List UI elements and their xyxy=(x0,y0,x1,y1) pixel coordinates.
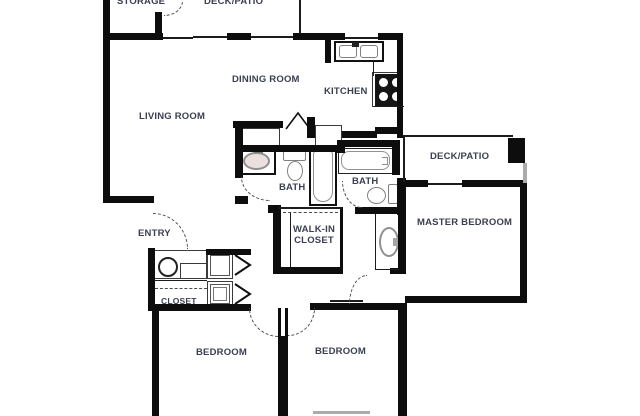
floor-plan-image: STORAGE DECK/PATIO DINING ROOM KITCHEN L… xyxy=(0,0,640,416)
wall-line xyxy=(375,214,376,270)
wall xyxy=(152,308,159,416)
walk-in-closet-line1: WALK-IN xyxy=(290,224,338,235)
wall-line xyxy=(155,280,207,281)
wall xyxy=(405,296,527,303)
wall xyxy=(520,182,527,303)
wall-line xyxy=(403,135,405,182)
kitchen-sink-bowl-right xyxy=(360,45,378,58)
walk-in-closet-line2: CLOSET xyxy=(290,235,338,246)
wall xyxy=(206,249,251,255)
wall-line xyxy=(373,60,374,76)
window-sill-line xyxy=(523,163,527,183)
closet-rod-dashed-line xyxy=(155,288,207,289)
wall xyxy=(380,303,407,310)
washer-dryer-arrows-icon xyxy=(233,253,253,307)
wall xyxy=(103,33,163,40)
wall xyxy=(273,205,281,274)
wall xyxy=(375,127,399,134)
wall xyxy=(148,304,251,311)
wall-line xyxy=(375,269,399,270)
wall-line xyxy=(290,213,291,267)
wall-line xyxy=(193,36,227,38)
stove-burner xyxy=(379,78,388,87)
wall xyxy=(155,12,162,35)
wall xyxy=(340,207,343,269)
wall xyxy=(110,196,154,203)
room-label-bath-left: BATH xyxy=(279,182,305,193)
wall-line xyxy=(403,135,513,137)
wall xyxy=(397,40,403,138)
door-swing-arc xyxy=(342,181,362,208)
wall xyxy=(235,145,337,152)
bath-left-sink-icon xyxy=(243,152,270,170)
wall xyxy=(148,248,155,308)
door-swing-arc xyxy=(349,275,367,304)
room-label-bedroom-right: BEDROOM xyxy=(315,346,366,357)
room-label-walk-in-closet: WALK-IN CLOSET xyxy=(290,224,338,246)
laundry-tub-icon xyxy=(158,257,178,277)
stove-burner xyxy=(379,92,388,101)
wall xyxy=(273,267,343,274)
closet-rod-dashed-line xyxy=(283,212,338,213)
wall xyxy=(325,40,331,63)
wall xyxy=(355,207,400,214)
wall-line xyxy=(299,0,301,34)
wall xyxy=(398,310,407,416)
wall-line xyxy=(278,207,342,209)
wall xyxy=(337,140,345,153)
wall xyxy=(235,196,248,204)
bathtub-faucet-right xyxy=(382,157,388,165)
wall xyxy=(398,213,406,274)
room-label-storage: STORAGE xyxy=(117,0,165,7)
wall-line xyxy=(251,36,293,38)
window-sill-line xyxy=(313,411,370,414)
wall xyxy=(403,180,428,187)
wall xyxy=(378,33,403,40)
wall xyxy=(293,33,345,40)
wall xyxy=(462,180,527,187)
door-swing-arc xyxy=(249,308,279,337)
washer-drum xyxy=(213,287,227,301)
door-swing-arc xyxy=(153,213,188,249)
bathtub-basin-left xyxy=(313,151,333,202)
wall-line xyxy=(428,183,462,185)
wall xyxy=(227,33,251,40)
toilet-icon-right xyxy=(367,187,386,204)
entry-counter-inner xyxy=(180,263,207,279)
room-label-dining-room: DINING ROOM xyxy=(232,74,300,85)
wall xyxy=(508,138,525,163)
wall xyxy=(337,140,397,147)
wall xyxy=(392,140,400,175)
wall-line xyxy=(345,37,378,39)
room-label-kitchen: KITCHEN xyxy=(324,86,368,97)
wall-line xyxy=(373,106,404,107)
room-label-master-bedroom: MASTER BEDROOM xyxy=(417,217,512,228)
toilet-icon-left xyxy=(287,161,303,181)
dryer-door xyxy=(210,255,230,276)
door-swing-arc xyxy=(164,1,183,16)
room-label-bedroom-left: BEDROOM xyxy=(196,347,247,358)
wall-line xyxy=(163,37,193,39)
wall xyxy=(307,117,315,138)
wall xyxy=(103,0,110,203)
room-label-living-room: LIVING ROOM xyxy=(139,111,205,122)
room-label-deck-patio-right: DECK/PATIO xyxy=(430,151,489,162)
wall xyxy=(278,336,288,416)
wall xyxy=(342,131,377,138)
kitchen-faucet xyxy=(352,42,359,47)
door-swing-arc xyxy=(288,308,315,336)
room-label-deck-patio-top: DECK/PATIO xyxy=(204,0,263,7)
